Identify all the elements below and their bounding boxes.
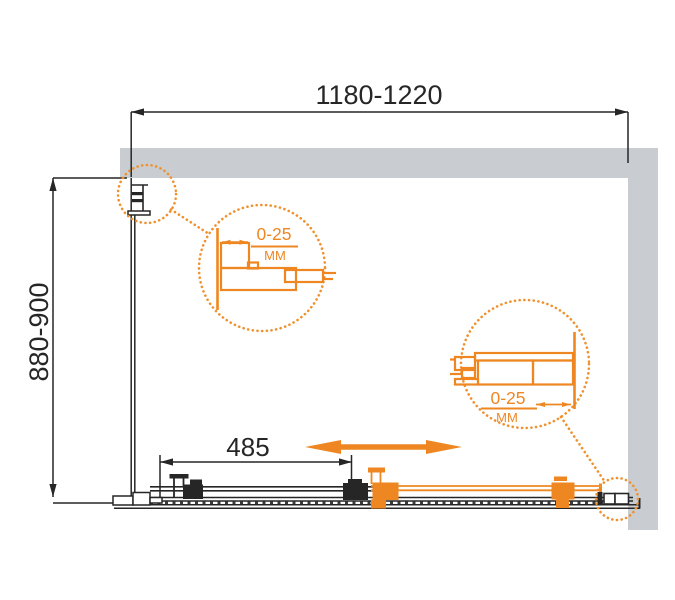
- carriage-cap: [368, 468, 385, 473]
- corner-profile: [150, 498, 162, 504]
- slide-direction-arrow: [305, 440, 462, 454]
- arrowhead-right: [339, 458, 352, 465]
- callout-leader: [561, 417, 605, 482]
- adjust-range-label: 0-25: [490, 388, 525, 408]
- wall-profile-right-end: [598, 492, 629, 506]
- roller-foot: [556, 500, 569, 509]
- profile-bar: [455, 379, 478, 385]
- corner-profile: [113, 496, 133, 505]
- top-wall: [120, 148, 658, 178]
- callout-leader: [171, 210, 209, 235]
- profile-bar: [132, 199, 143, 202]
- adjust-unit-label: MM: [264, 248, 286, 263]
- profile-bar: [598, 492, 603, 506]
- walls: [120, 148, 658, 530]
- roller-block: [183, 485, 203, 500]
- arrowhead-left: [536, 402, 545, 407]
- detail-callout-right: 0-25 MM: [450, 300, 638, 520]
- detail-callout-left: 0-25 MM: [118, 165, 336, 331]
- profile-bar: [132, 192, 143, 195]
- profile-bar: [475, 353, 573, 361]
- panel-dimension-label: 485: [226, 432, 269, 462]
- profile-bar: [285, 270, 323, 282]
- roller-foot: [371, 500, 386, 509]
- arrowhead-top: [49, 178, 56, 191]
- roller-block: [343, 483, 368, 500]
- arrowhead-right: [615, 108, 628, 115]
- profile-box: [221, 243, 249, 268]
- depth-dimension-label: 880-900: [24, 282, 54, 381]
- arrowhead-right: [562, 402, 571, 407]
- arrowhead-left: [160, 458, 173, 465]
- right-wall: [628, 148, 658, 530]
- double-arrow: [305, 440, 462, 454]
- profile-box: [604, 494, 615, 505]
- depth-dimension: 880-900: [24, 178, 127, 503]
- profile-foot: [128, 211, 150, 215]
- roller-block: [373, 483, 399, 501]
- arrowhead-left: [131, 108, 144, 115]
- sliding-door: [368, 468, 601, 509]
- adjust-unit-label: MM: [496, 410, 518, 425]
- door-assembly: [113, 468, 640, 509]
- door-roller-left: [368, 468, 399, 509]
- width-dimension-label: 1180-1220: [315, 80, 442, 110]
- arrowhead-bottom: [49, 484, 56, 497]
- profile-box: [478, 361, 533, 385]
- roller-carriage-fixed-right: [343, 479, 368, 500]
- drawing-canvas: 1180-1220 880-900 485: [0, 0, 675, 600]
- adjust-range-label: 0-25: [256, 224, 291, 244]
- profile-box: [533, 361, 573, 385]
- technical-drawing: 1180-1220 880-900 485: [0, 0, 675, 600]
- profile-box: [615, 494, 629, 505]
- roller-cap: [190, 480, 202, 485]
- roller-carriage-fixed-left: [170, 474, 204, 499]
- corner-profile: [133, 493, 150, 506]
- carriage-cap: [170, 474, 189, 479]
- side-panel: [128, 178, 150, 497]
- roller-block: [552, 483, 575, 500]
- carriage-cap: [554, 477, 567, 482]
